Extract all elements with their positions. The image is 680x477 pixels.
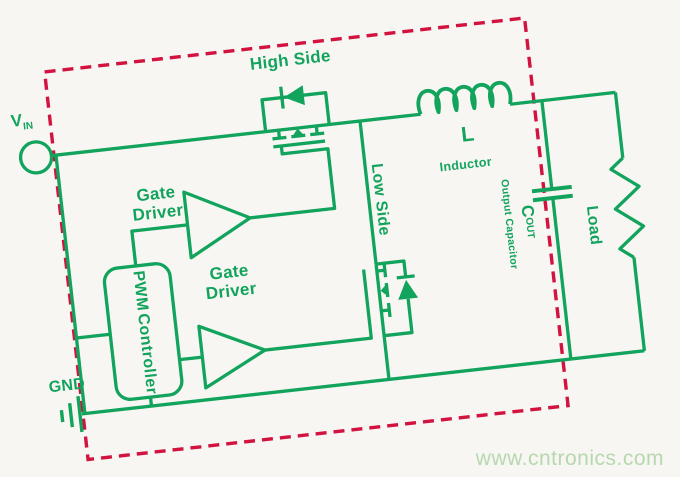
- inductor-coil: [417, 82, 511, 115]
- watermark-text: www.cntronics.com: [476, 447, 664, 471]
- schematic-rotated-group: VIN GND High Side Gate Driver Gate Drive…: [0, 0, 680, 477]
- wire-pwm-to-driver1: [132, 225, 192, 266]
- wire-pwm-left: [76, 334, 110, 338]
- inductor-symbol-label: L: [460, 122, 476, 147]
- wire-pwm-ground: [150, 397, 151, 406]
- wire-top-rail-right: [510, 92, 615, 104]
- cout-label: COUT: [517, 204, 540, 240]
- ground-symbol: [60, 396, 82, 434]
- buck-converter-diagram: VIN GND High Side Gate Driver Gate Drive…: [0, 0, 680, 477]
- wire-driver2-to-gate: [257, 270, 371, 350]
- schematic-svg: [0, 0, 680, 477]
- vin-label: VIN: [10, 110, 34, 134]
- ic-boundary-dashed-box: [45, 18, 568, 459]
- vin-terminal-circle: [19, 140, 53, 174]
- wire-top-rail-left: [51, 114, 421, 155]
- gate-driver-bottom-triangle: [199, 319, 269, 388]
- load-resistor: [603, 91, 658, 352]
- wire-driver1-to-gate: [243, 141, 335, 218]
- wire-lowside-channel: [376, 264, 389, 379]
- wire-pwm-to-driver2: [180, 357, 203, 360]
